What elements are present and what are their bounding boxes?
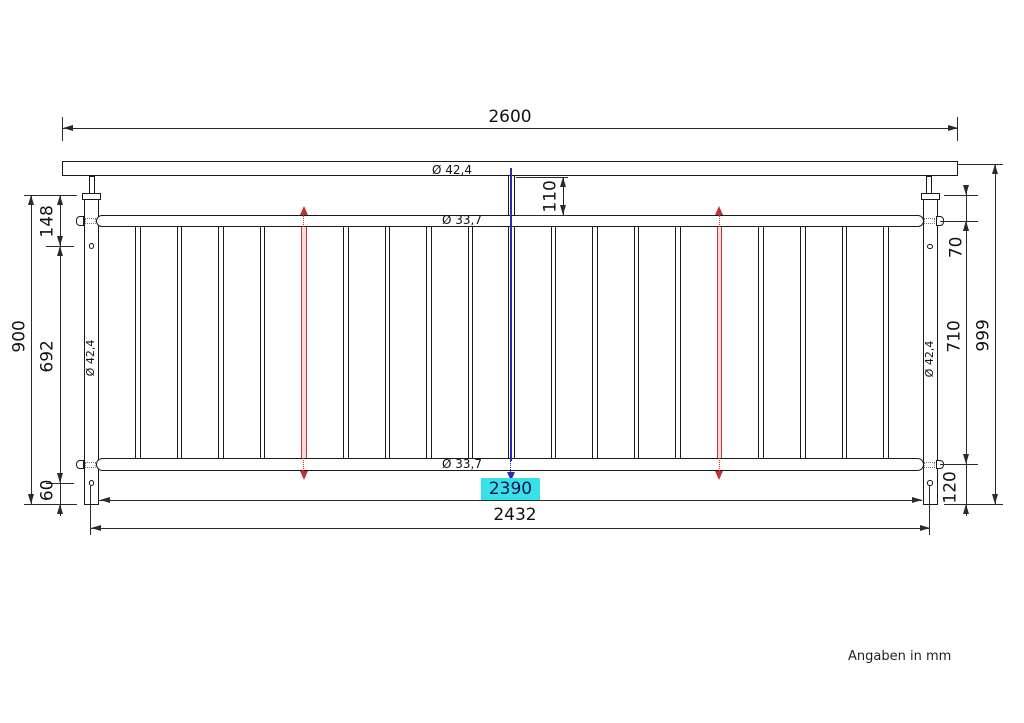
dim-label-110: 110 (542, 174, 561, 218)
technical-drawing-railing: 2600 Ø 42,4 Ø 42,4 Ø 42,4 Ø 33,7 Ø 33,7 … (0, 0, 1024, 723)
dim-label-70: 70 (948, 225, 967, 269)
dim-arrow-2600-left (63, 125, 73, 131)
baluster (634, 227, 640, 458)
dim-arrow-710-top (963, 221, 969, 231)
red-marker-hidden-line-top (719, 215, 720, 227)
ext-line-top-rail-center (940, 221, 978, 222)
baluster (842, 227, 848, 458)
dim-arrow-710-bottom (963, 454, 969, 464)
dim-label-999: 999 (975, 313, 994, 357)
blue-centerline (510, 168, 512, 461)
hidden-bolt-top-right (924, 218, 935, 224)
dim-arrow-2432-left (91, 525, 101, 531)
baluster (260, 227, 266, 458)
dim-arrow-148-bottom (57, 236, 63, 246)
dim-arrow-2390-left (100, 497, 110, 503)
dim-line-2390 (99, 500, 922, 501)
red-marker-arrow-up (300, 206, 308, 215)
dim-line-2432 (90, 528, 930, 529)
baluster (800, 227, 806, 458)
blue-centerline-hidden-line (510, 460, 511, 472)
dim-label-148: 148 (39, 199, 58, 243)
baluster (675, 227, 681, 458)
top-rail-left-stub (76, 216, 85, 226)
dim-arrow-120-bottom (963, 504, 969, 514)
baluster (883, 227, 889, 458)
dim-label-60: 60 (39, 468, 58, 512)
right-post-stem (926, 176, 933, 195)
dim-label-2390-highlighted: 2390 (481, 478, 540, 500)
baluster (343, 227, 349, 458)
dim-label-692: 692 (39, 334, 58, 378)
dim-arrow-692-top (57, 246, 63, 256)
baluster (468, 227, 474, 458)
dim-line-900 (31, 195, 32, 505)
dim-label-2600: 2600 (478, 108, 542, 127)
dim-arrow-110-bottom (560, 205, 566, 215)
dim-label-120: 120 (942, 465, 961, 509)
left-post-diameter-label: Ø 42,4 (85, 336, 97, 380)
dim-label-710: 710 (946, 314, 965, 358)
dim-line-999 (995, 164, 996, 504)
baluster (135, 227, 141, 458)
bottom-rail-left-stub (76, 460, 85, 470)
red-marker-hidden-line-bottom (303, 458, 304, 471)
baluster (592, 227, 598, 458)
baluster (385, 227, 391, 458)
handrail-diameter-label: Ø 42,4 (424, 164, 480, 176)
left-post-lower-hole (89, 480, 95, 486)
dim-arrow-999-top (992, 164, 998, 174)
dim-arrow-900-bottom (28, 494, 34, 504)
left-post-upper-hole (89, 243, 95, 249)
red-marker-arrow-down (715, 471, 723, 480)
dim-arrow-110-top (560, 177, 566, 187)
dim-arrow-70-top (963, 185, 969, 195)
dim-line-692 (60, 246, 61, 483)
right-post-upper-hole (927, 244, 933, 250)
dim-arrow-999-bottom (992, 494, 998, 504)
baluster (177, 227, 183, 458)
ext-line-right-post-top (944, 195, 978, 196)
red-marker-arrow-down (300, 471, 308, 480)
dim-arrow-148-top (57, 195, 63, 205)
baluster (551, 227, 557, 458)
baluster (758, 227, 764, 458)
baluster (218, 227, 224, 458)
dim-arrow-2432-right (920, 525, 930, 531)
dim-arrow-2390-right (912, 497, 922, 503)
hidden-bolt-top-left (85, 218, 96, 224)
dim-arrow-60-bottom (57, 504, 63, 514)
bottom-rail-diameter-label: Ø 33,7 (434, 458, 490, 470)
red-marker-hidden-line-top (303, 215, 304, 227)
red-marker-arrow-up (715, 206, 723, 215)
dim-arrow-2600-right (948, 125, 958, 131)
dim-label-2432: 2432 (486, 506, 544, 525)
top-rail-diameter-label: Ø 33,7 (434, 214, 490, 226)
dim-label-900: 900 (11, 314, 30, 358)
dim-arrow-900-top (28, 195, 34, 205)
baluster-marked-red (301, 227, 307, 458)
baluster-marked-red (717, 227, 723, 458)
hidden-bolt-bottom-left (85, 462, 96, 468)
baluster (426, 227, 432, 458)
right-post-diameter-label: Ø 42,4 (924, 337, 936, 381)
right-post-lower-hole (927, 480, 933, 486)
hidden-bolt-bottom-right (924, 462, 935, 468)
units-note: Angaben in mm (848, 649, 951, 664)
red-marker-hidden-line-bottom (719, 458, 720, 471)
left-post-stem (89, 176, 96, 195)
dim-line-710 (966, 221, 967, 464)
dim-line-2600 (62, 128, 958, 129)
